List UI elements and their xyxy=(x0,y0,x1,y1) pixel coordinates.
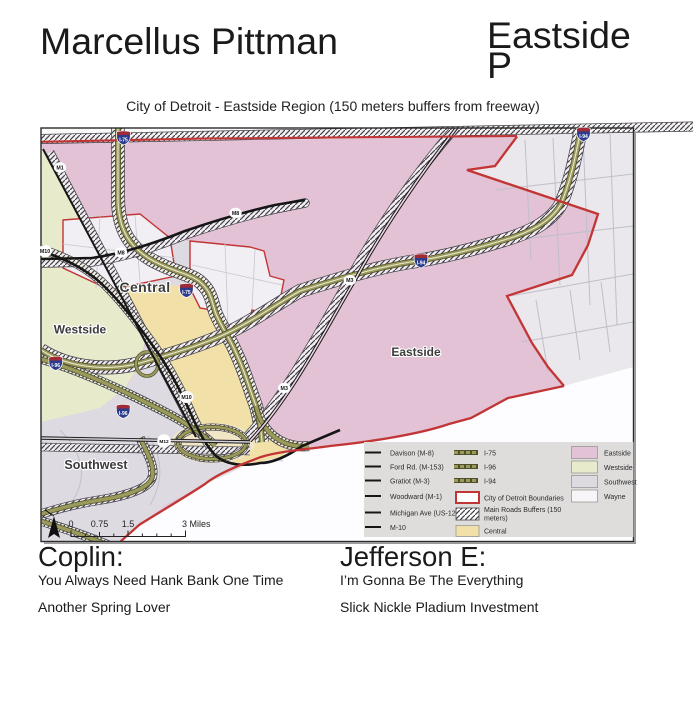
svg-text:I-75: I-75 xyxy=(119,137,128,143)
svg-text:Eastside: Eastside xyxy=(391,345,441,359)
svg-text:M8: M8 xyxy=(117,251,124,257)
svg-text:M12: M12 xyxy=(159,439,169,445)
svg-text:M10: M10 xyxy=(40,249,50,255)
svg-text:0: 0 xyxy=(68,519,73,529)
svg-text:Main Roads Buffers (150: Main Roads Buffers (150 xyxy=(484,507,561,514)
svg-text:meters): meters) xyxy=(484,516,508,523)
svg-text:City of Detroit Boundaries: City of Detroit Boundaries xyxy=(484,495,564,502)
svg-text:M3: M3 xyxy=(281,386,288,392)
svg-text:Southwest: Southwest xyxy=(604,479,637,486)
svg-text:1.5: 1.5 xyxy=(122,519,135,529)
svg-text:Davison (M-8): Davison (M-8) xyxy=(390,450,434,457)
svg-text:Southwest: Southwest xyxy=(64,458,128,472)
svg-text:M3: M3 xyxy=(346,278,353,284)
svg-text:3 Miles: 3 Miles xyxy=(182,519,211,529)
svg-text:Central: Central xyxy=(119,279,170,295)
svg-text:Gratiot (M-3): Gratiot (M-3) xyxy=(390,478,430,485)
svg-text:I-96: I-96 xyxy=(119,411,128,417)
svg-text:M1: M1 xyxy=(56,166,63,172)
svg-text:M10: M10 xyxy=(181,395,191,401)
svg-text:Eastside: Eastside xyxy=(604,450,631,457)
svg-text:I-96: I-96 xyxy=(51,363,60,369)
svg-text:I-94: I-94 xyxy=(484,478,496,485)
svg-text:Westside: Westside xyxy=(604,465,633,472)
svg-text:Michigan Ave (US-12): Michigan Ave (US-12) xyxy=(390,510,458,517)
svg-text:M-10: M-10 xyxy=(390,525,406,532)
svg-text:Woodward (M-1): Woodward (M-1) xyxy=(390,494,442,501)
svg-text:I-75: I-75 xyxy=(182,290,191,296)
svg-text:I-75: I-75 xyxy=(484,450,496,457)
svg-text:I-96: I-96 xyxy=(484,464,496,471)
svg-text:0.75: 0.75 xyxy=(91,519,109,529)
svg-text:Westside: Westside xyxy=(54,323,107,337)
svg-text:I-94: I-94 xyxy=(417,260,426,266)
svg-text:Wayne: Wayne xyxy=(604,494,626,501)
svg-text:M8: M8 xyxy=(232,211,239,217)
svg-text:Central: Central xyxy=(484,528,507,535)
svg-text:Ford Rd. (M-153): Ford Rd. (M-153) xyxy=(390,464,444,471)
svg-text:I-94: I-94 xyxy=(579,134,588,140)
